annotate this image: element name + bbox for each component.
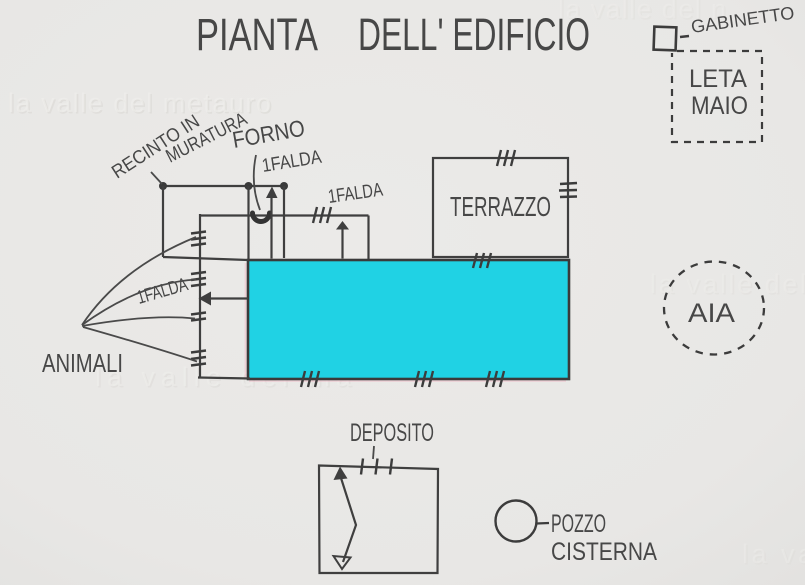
svg-text:POZZO: POZZO	[551, 510, 606, 538]
svg-text:LETA: LETA	[689, 65, 747, 93]
svg-text:DEPOSITO: DEPOSITO	[350, 419, 434, 447]
svg-text:PIANTA: PIANTA	[196, 9, 318, 60]
svg-text:MAIO: MAIO	[691, 92, 748, 120]
svg-text:DELL' EDIFICIO: DELL' EDIFICIO	[358, 9, 590, 60]
svg-text:AIA: AIA	[688, 298, 735, 328]
svg-text:TERRAZZO: TERRAZZO	[450, 191, 551, 222]
svg-text:CISTERNA: CISTERNA	[551, 538, 657, 566]
svg-text:ANIMALI: ANIMALI	[42, 348, 123, 378]
